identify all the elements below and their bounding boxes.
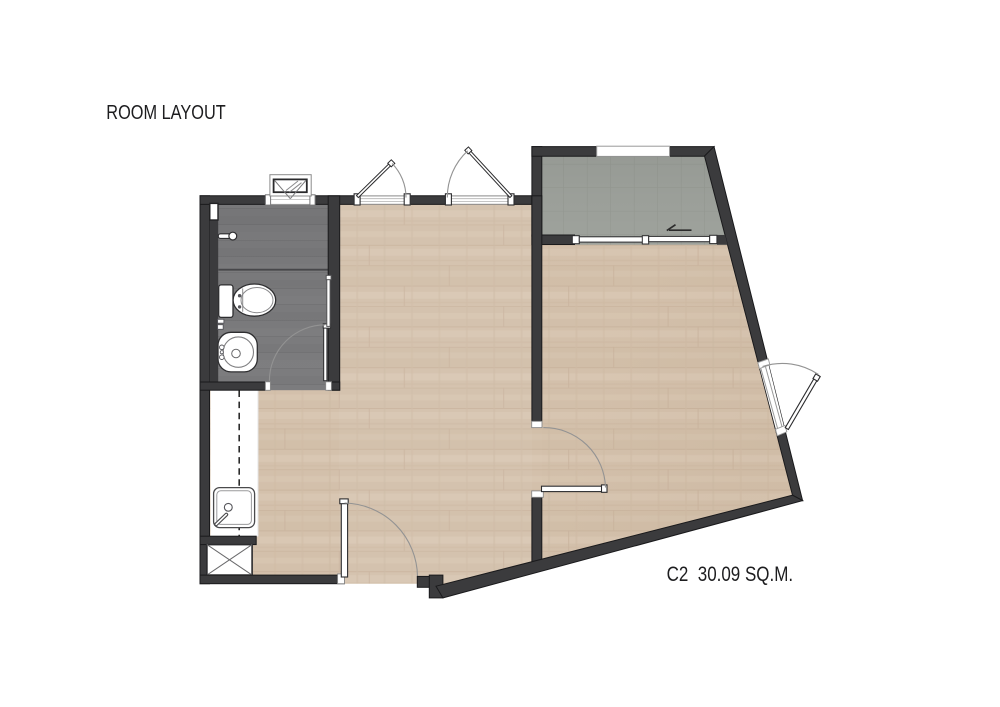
svg-text:C2 30.09 SQ.M.: C2 30.09 SQ.M.: [667, 563, 794, 586]
svg-text:ROOM LAYOUT: ROOM LAYOUT: [106, 102, 225, 124]
